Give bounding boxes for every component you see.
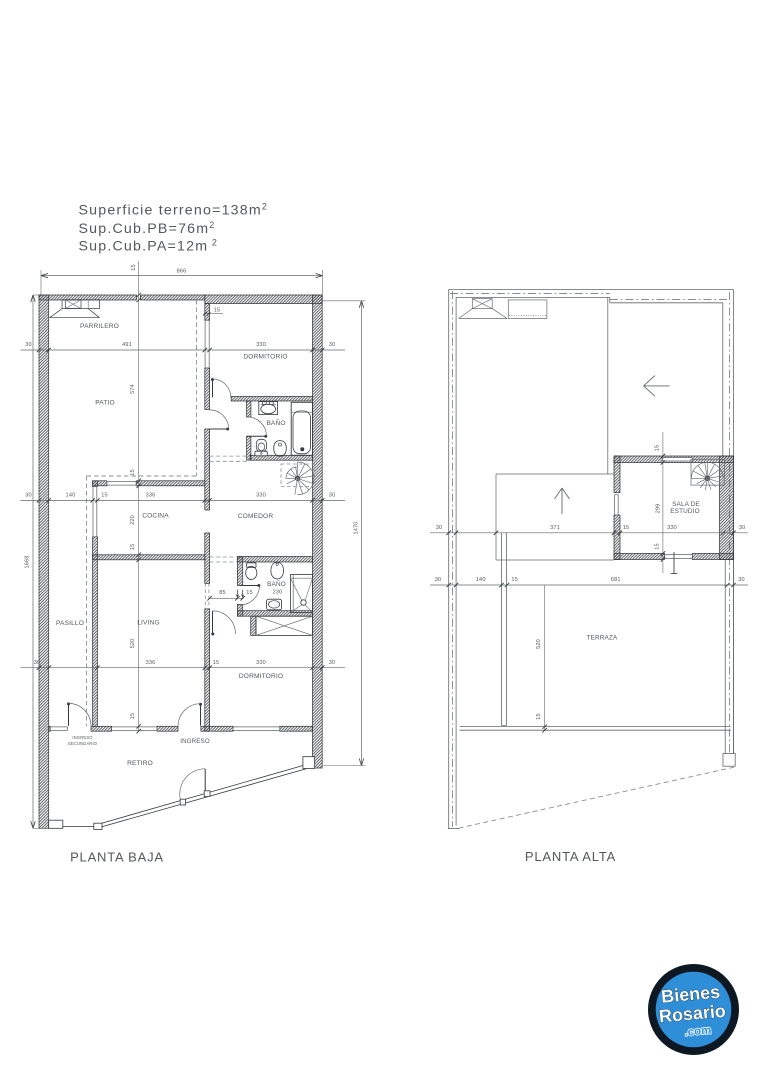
svg-text:330: 330 [256, 342, 266, 348]
svg-text:230: 230 [273, 589, 283, 595]
svg-text:PLANTA BAJA: PLANTA BAJA [70, 850, 164, 865]
svg-text:1470: 1470 [353, 521, 359, 534]
svg-text:30: 30 [34, 660, 41, 666]
svg-text:INGRESO: INGRESO [180, 738, 210, 745]
svg-text:COCINA: COCINA [142, 513, 169, 520]
svg-text:15: 15 [654, 445, 660, 452]
svg-text:681: 681 [611, 577, 621, 583]
svg-text:Sup.Cub.PB=76m2: Sup.Cub.PB=76m2 [79, 220, 216, 237]
svg-text:520: 520 [130, 639, 136, 649]
svg-text:330: 330 [256, 660, 266, 666]
svg-text:140: 140 [476, 577, 486, 583]
svg-text:15: 15 [131, 264, 137, 271]
svg-text:30: 30 [435, 577, 442, 583]
svg-text:140: 140 [66, 493, 76, 499]
svg-text:15: 15 [623, 525, 630, 531]
svg-text:30: 30 [329, 493, 336, 499]
svg-text:15: 15 [130, 713, 136, 720]
svg-text:30: 30 [329, 660, 336, 666]
svg-text:220: 220 [130, 515, 136, 525]
svg-text:DORMITORIO: DORMITORIO [239, 673, 283, 680]
svg-text:15: 15 [130, 544, 136, 551]
svg-text:TERRAZA: TERRAZA [587, 635, 618, 642]
svg-text:15: 15 [654, 543, 660, 550]
svg-text:15: 15 [214, 308, 221, 314]
svg-text:299: 299 [655, 504, 661, 514]
svg-text:491: 491 [122, 342, 132, 348]
svg-text:INGRESO: INGRESO [72, 735, 93, 740]
svg-text:PARRILERO: PARRILERO [80, 323, 119, 330]
svg-text:15: 15 [101, 493, 108, 499]
svg-text:330: 330 [667, 525, 677, 531]
svg-text:15: 15 [130, 469, 136, 476]
svg-text:15: 15 [511, 577, 518, 583]
svg-text:SALA DE: SALA DE [672, 501, 700, 508]
svg-text:SECUNDARIO: SECUNDARIO [68, 741, 98, 746]
svg-text:30: 30 [738, 577, 745, 583]
svg-text:BAÑO: BAÑO [267, 579, 286, 588]
svg-text:30: 30 [739, 525, 746, 531]
svg-text:520: 520 [536, 639, 542, 649]
svg-text:15: 15 [536, 713, 542, 720]
svg-text:574: 574 [130, 384, 136, 394]
svg-text:15: 15 [213, 660, 220, 666]
svg-text:371: 371 [550, 525, 560, 531]
svg-text:PLANTA ALTA: PLANTA ALTA [525, 849, 616, 864]
svg-text:30: 30 [436, 525, 443, 531]
svg-text:COMEDOR: COMEDOR [238, 513, 274, 520]
svg-text:LIVING: LIVING [137, 620, 160, 627]
svg-text:BAÑO: BAÑO [266, 418, 285, 427]
svg-text:RETIRO: RETIRO [127, 760, 153, 767]
svg-text:85: 85 [219, 590, 226, 596]
svg-text:866: 866 [177, 268, 187, 274]
svg-text:30: 30 [25, 342, 32, 348]
svg-text:336: 336 [146, 493, 156, 499]
svg-text:330: 330 [256, 493, 266, 499]
svg-text:PASILLO: PASILLO [56, 620, 84, 627]
svg-text:.com: .com [684, 1025, 712, 1039]
svg-text:ESTUDIO: ESTUDIO [670, 508, 699, 515]
svg-text:Superficie terreno=138m2: Superficie terreno=138m2 [79, 202, 269, 219]
svg-text:PATIO: PATIO [95, 400, 115, 407]
svg-text:DORMITORIO: DORMITORIO [243, 354, 287, 361]
svg-text:1668: 1668 [25, 555, 31, 568]
svg-text:15: 15 [246, 590, 253, 596]
svg-text:Sup.Cub.PA=12m 2: Sup.Cub.PA=12m 2 [79, 238, 219, 255]
svg-text:30: 30 [329, 342, 336, 348]
svg-text:30: 30 [25, 493, 32, 499]
svg-text:336: 336 [146, 660, 156, 666]
